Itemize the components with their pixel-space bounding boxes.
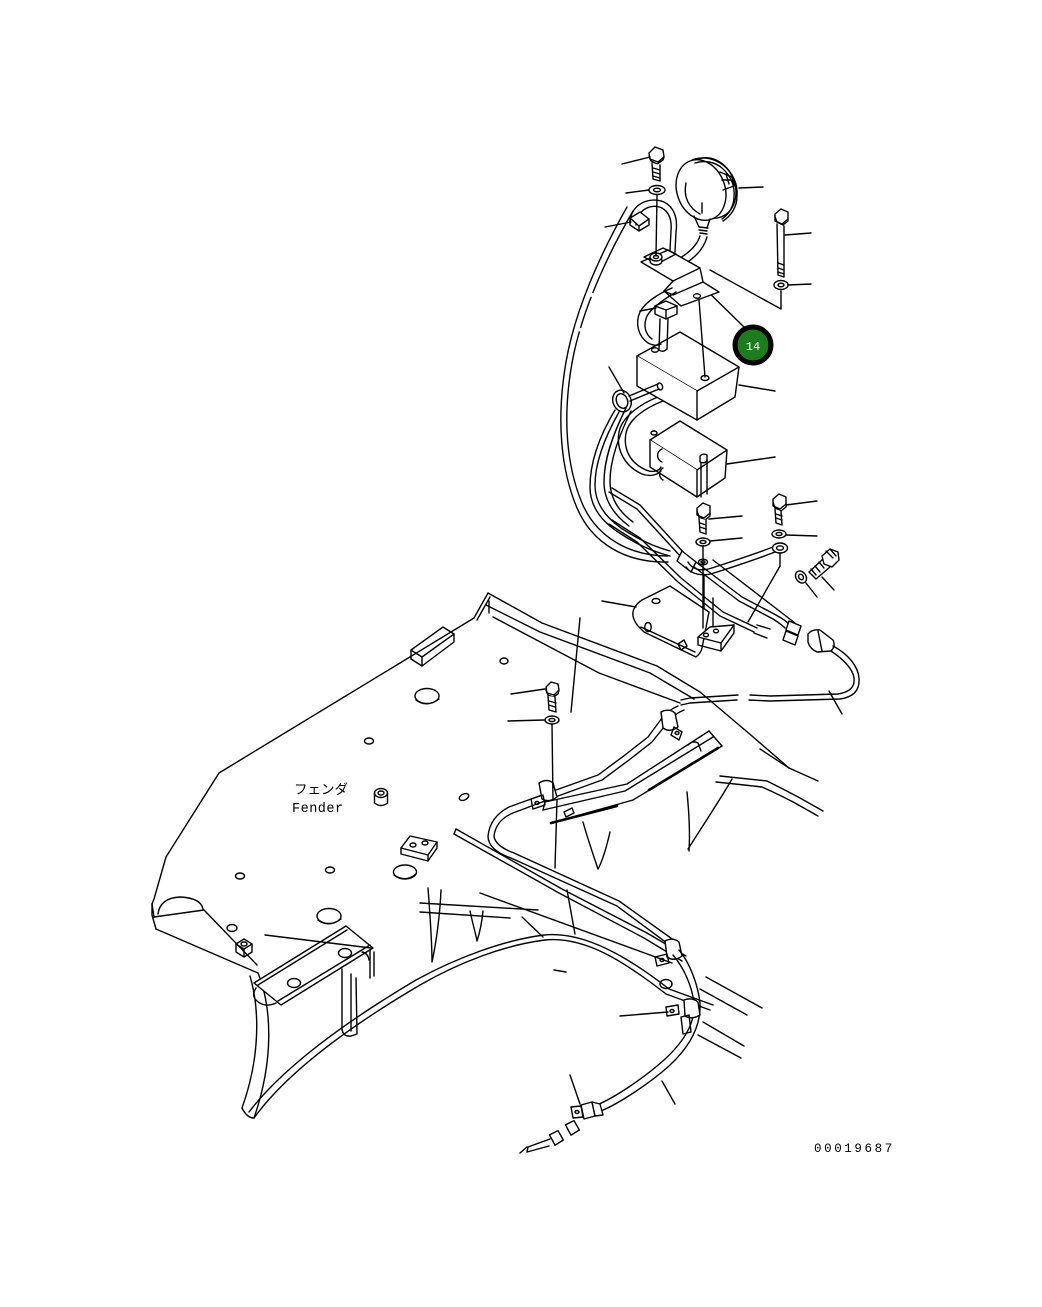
svg-text:14: 14 [746,340,760,354]
svg-text:Fender: Fender [292,802,344,817]
svg-text:00019687: 00019687 [814,1142,895,1156]
svg-text:フェンダ: フェンダ [294,782,348,799]
